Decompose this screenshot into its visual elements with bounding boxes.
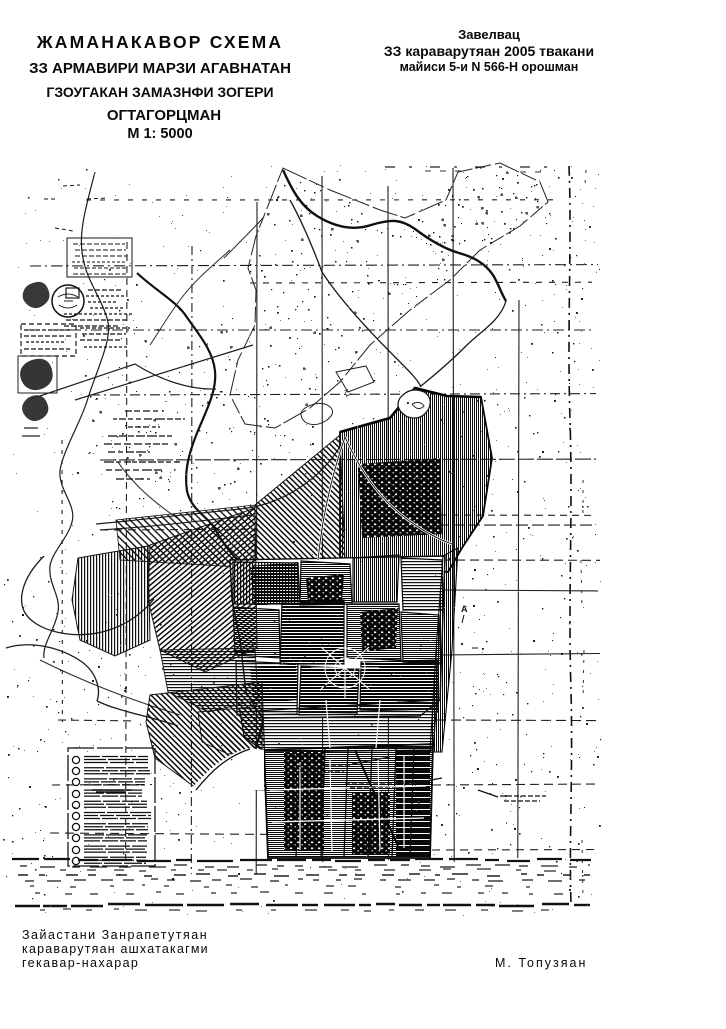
svg-text:A: A bbox=[461, 604, 468, 614]
svg-text:x1: x1 bbox=[342, 388, 354, 400]
